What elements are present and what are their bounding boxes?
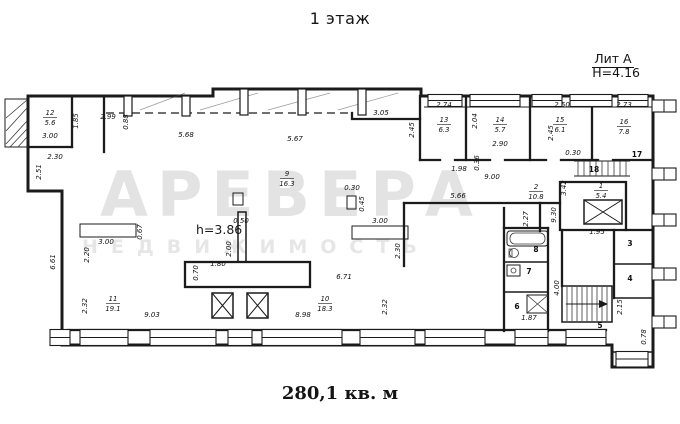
bathtub-icon: [507, 231, 548, 258]
dimension-label: 3.00: [372, 217, 388, 225]
dimension-label: 0.30: [565, 149, 581, 157]
room-label-area: 19.1: [105, 305, 120, 313]
room-label-number: 16: [620, 118, 629, 126]
shower-tray-icon: [527, 295, 548, 313]
dimension-label: 0.78: [640, 329, 648, 345]
room-number: 4: [627, 274, 632, 283]
room-label-number: 11: [109, 295, 118, 303]
ceiling-height-note: h=3.86: [196, 222, 242, 237]
dimension-label: 3.42: [560, 180, 568, 196]
dimension-label: 2.30: [47, 153, 63, 161]
dimension-label: 2.15: [616, 299, 624, 315]
dimension-label: 2.20: [83, 247, 91, 263]
dimension-label: 1.98: [451, 165, 467, 173]
floor-plan-page: АРЕВЕРА НЕДВИЖИМОСТЬ 1 этаж Лит А Н=4.16: [0, 0, 680, 424]
dimension-label: 1.85: [72, 113, 80, 129]
room-number: 18: [589, 165, 599, 174]
dimension-label: 0.67: [136, 224, 144, 240]
room-number: 3: [627, 239, 632, 248]
dimension-label: 2.51: [35, 164, 43, 180]
dimension-label: 2.74: [436, 101, 452, 109]
dimension-label: 9.30: [550, 207, 558, 223]
column-shafts: [212, 293, 268, 318]
dimension-label: 2.04: [471, 113, 479, 129]
dimension-label: 2.50: [554, 101, 570, 109]
dimension-label: 3.00: [42, 132, 58, 140]
room-label-area: 6.1: [555, 126, 566, 134]
room-label-area: 5.4: [596, 192, 607, 200]
dimension-label: 1.95: [589, 228, 605, 236]
dimension-label: 1.87: [521, 314, 537, 322]
dimension-label: 2.32: [381, 299, 389, 315]
room-number: 5: [597, 321, 602, 330]
room-label-number: 1: [599, 182, 603, 190]
room-number: 17: [632, 150, 642, 159]
dimension-label: 5.67: [287, 135, 303, 143]
dimension-label: 8.98: [295, 311, 311, 319]
room-number: 7: [526, 267, 531, 276]
room-label-area: 18.3: [317, 305, 332, 313]
room-number: 6: [514, 302, 519, 311]
room-label-area: 5.7: [495, 126, 506, 134]
dimension-label: 6.71: [336, 273, 352, 281]
dimension-label: 0.30: [344, 184, 360, 192]
dimension-label: 4.00: [553, 280, 561, 296]
elevator-shaft-icon: [584, 200, 622, 224]
room-label-area: 5.6: [45, 119, 56, 127]
entry-steps-icon: [574, 161, 630, 176]
dimension-label: 5.68: [178, 131, 194, 139]
dimension-label: 3.05: [373, 109, 389, 117]
room-label-number: 13: [440, 116, 449, 124]
room-label-number: 2: [534, 183, 538, 191]
dimension-label: 0.45: [358, 196, 366, 212]
room-label-number: 10: [321, 295, 330, 303]
labels-layer: 3.001.852.990.885.685.673.052.302.516.61…: [35, 101, 648, 345]
dimension-label: 9.03: [144, 311, 160, 319]
room-label-area: 7.8: [619, 128, 630, 136]
dimension-label: 2.45: [408, 122, 416, 138]
room-label-number: 15: [556, 116, 565, 124]
dimension-label: 2.27: [522, 211, 530, 227]
dimension-label: 2.00: [225, 241, 233, 257]
dimension-label: 2.32: [81, 298, 89, 314]
dimension-label: 0.36: [473, 155, 481, 171]
room-label-number: 9: [285, 170, 289, 178]
dimension-label: 0.88: [122, 114, 130, 130]
dimension-label: 5.66: [450, 192, 466, 200]
dimension-label: 1.80: [210, 260, 226, 268]
room-number: 8: [533, 245, 538, 254]
room-label-area: 16.3: [279, 180, 294, 188]
room-label-number: 12: [46, 109, 55, 117]
staircase-icon: [562, 286, 612, 322]
dimension-label: 2.73: [616, 101, 632, 109]
dimension-label: 0.70: [192, 265, 200, 281]
dimension-label: 2.30: [394, 243, 402, 259]
floor-plan-svg: 3.001.852.990.885.685.673.052.302.516.61…: [0, 0, 680, 424]
total-area-label: 280,1 кв. м: [0, 383, 680, 404]
room-label-area: 10.8: [528, 193, 544, 201]
dimension-label: 3.00: [98, 238, 114, 246]
room-label-area: 6.3: [439, 126, 450, 134]
sink-icon: [507, 265, 520, 276]
dimension-label: 6.61: [49, 254, 57, 270]
room-label-number: 14: [496, 116, 505, 124]
dimension-label: 2.99: [100, 113, 116, 121]
porch-hatch: [5, 99, 28, 147]
dimension-label: 9.00: [484, 173, 500, 181]
dimension-label: 2.90: [492, 140, 508, 148]
